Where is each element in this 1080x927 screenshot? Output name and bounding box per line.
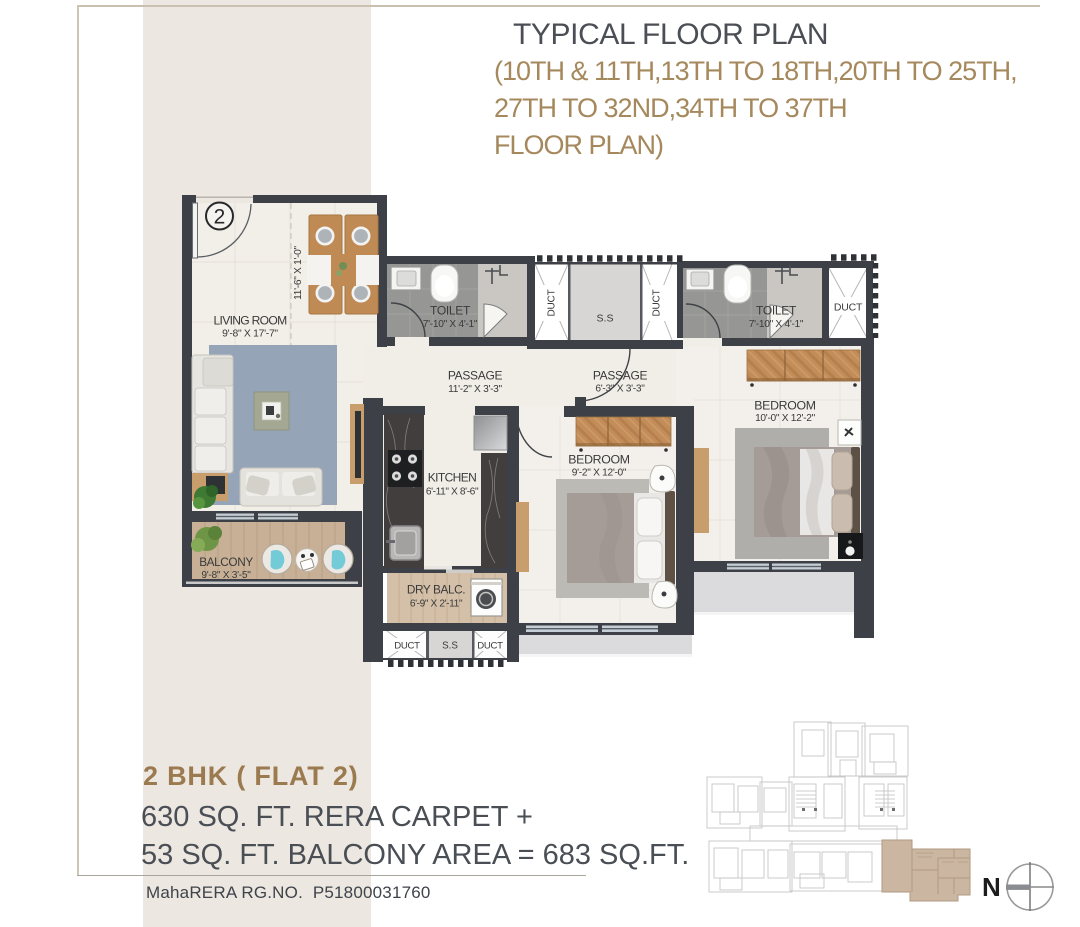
- svg-text:BEDROOM: BEDROOM: [754, 399, 815, 413]
- svg-text:9'-2" X 12'-0": 9'-2" X 12'-0": [572, 468, 627, 479]
- svg-text:2: 2: [214, 206, 226, 229]
- svg-text:6'-11" X 8'-6": 6'-11" X 8'-6": [426, 487, 479, 498]
- svg-text:DRY BALC.: DRY BALC.: [407, 583, 465, 597]
- svg-text:7'-10" X 4'-1": 7'-10" X 4'-1": [749, 319, 804, 330]
- svg-text:6'-9" X 2'-11": 6'-9" X 2'-11": [410, 599, 463, 610]
- svg-text:9'-8" X 3'-5": 9'-8" X 3'-5": [201, 570, 251, 581]
- svg-text:S.S: S.S: [442, 641, 458, 652]
- svg-text:DUCT: DUCT: [477, 641, 503, 652]
- svg-text:DUCT: DUCT: [834, 302, 863, 314]
- svg-text:TOILET: TOILET: [756, 304, 797, 318]
- svg-text:6'-3" X 3'-3": 6'-3" X 3'-3": [595, 384, 645, 395]
- svg-text:S.S: S.S: [597, 313, 614, 325]
- svg-text:BEDROOM: BEDROOM: [568, 453, 629, 467]
- svg-text:DUCT: DUCT: [547, 289, 558, 316]
- svg-text:PASSAGE: PASSAGE: [448, 369, 503, 383]
- svg-text:LIVING ROOM: LIVING ROOM: [214, 314, 288, 328]
- svg-text:7'-10" X 4'-1": 7'-10" X 4'-1": [423, 319, 478, 330]
- svg-text:9'-8" X 17'-7": 9'-8" X 17'-7": [222, 329, 278, 340]
- svg-text:KITCHEN: KITCHEN: [428, 471, 476, 485]
- svg-text:BALCONY: BALCONY: [199, 555, 253, 569]
- svg-text:11'-2" X 3'-3": 11'-2" X 3'-3": [448, 384, 502, 395]
- svg-text:DUCT: DUCT: [394, 641, 420, 652]
- svg-text:DUCT: DUCT: [652, 289, 663, 316]
- svg-text:TOILET: TOILET: [430, 304, 471, 318]
- svg-text:PASSAGE: PASSAGE: [593, 369, 648, 383]
- svg-text:11'-6" X 1'-0": 11'-6" X 1'-0": [293, 245, 304, 299]
- svg-text:10'-0" X 12'-2": 10'-0" X 12'-2": [755, 413, 816, 424]
